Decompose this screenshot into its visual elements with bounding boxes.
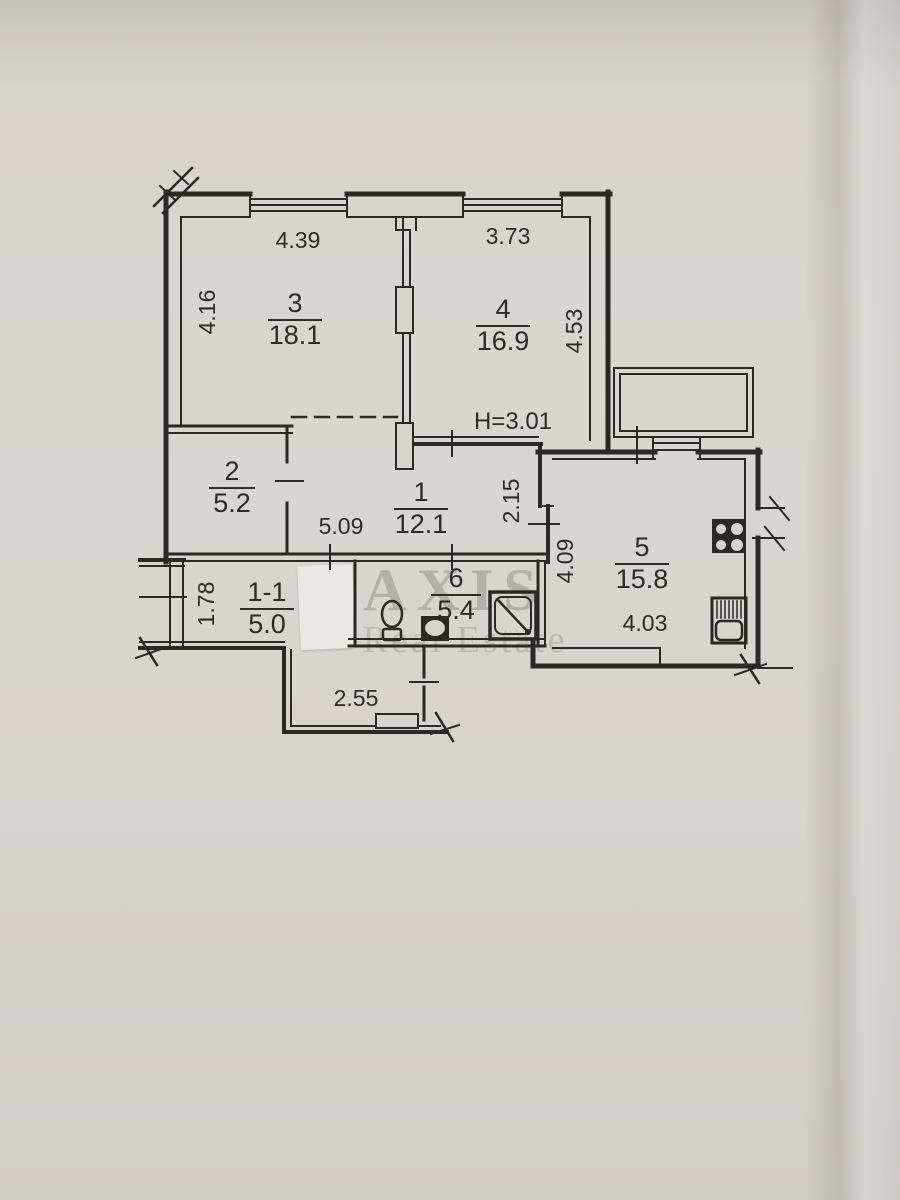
dim-corridor-depth: 1.78 bbox=[193, 582, 219, 627]
dim-room3-depth: 4.16 bbox=[194, 290, 220, 335]
window-room3 bbox=[250, 194, 347, 217]
room-number: 2 bbox=[224, 456, 239, 486]
room-number: 6 bbox=[448, 563, 463, 593]
room-number: 1 bbox=[413, 477, 428, 507]
room-3-label: 3 18.1 bbox=[269, 288, 322, 350]
room-area: 18.1 bbox=[269, 320, 322, 350]
dim-hall-depth: 2.15 bbox=[498, 479, 524, 524]
door-jambs bbox=[376, 287, 418, 728]
room-4-label: 4 16.9 bbox=[477, 294, 530, 356]
ceiling-height-label: H=3.01 bbox=[474, 408, 552, 435]
room-area: 5.0 bbox=[248, 609, 286, 639]
room-5-label: 5 15.8 bbox=[616, 532, 669, 594]
room-area: 16.9 bbox=[477, 326, 530, 356]
dim-room4-width: 3.73 bbox=[486, 223, 531, 249]
window-room4 bbox=[463, 194, 562, 217]
floor-plan-drawing: 3 18.1 4 16.9 2 5.2 1 12.1 1-1 5.0 6 5.4 bbox=[0, 0, 900, 1200]
balcony bbox=[614, 368, 753, 437]
room-6-label: 6 5.4 bbox=[432, 563, 480, 625]
floor-plan-photo: AXIS Real Estate bbox=[0, 0, 900, 1200]
room-area: 5.4 bbox=[437, 595, 475, 625]
toilet-icon bbox=[382, 601, 402, 640]
dim-hall-width: 5.09 bbox=[319, 513, 364, 539]
room-number: 5 bbox=[634, 532, 649, 562]
room-area: 5.2 bbox=[213, 488, 251, 518]
dim-entry-width: 2.55 bbox=[334, 685, 379, 711]
dim-kitchen-depth: 4.09 bbox=[552, 539, 578, 584]
dim-room3-width: 4.39 bbox=[276, 227, 321, 253]
window-kitchen bbox=[653, 437, 700, 459]
room-2-label: 2 5.2 bbox=[210, 456, 254, 518]
dim-kitchen-width: 4.03 bbox=[623, 610, 668, 636]
room-area: 12.1 bbox=[395, 509, 448, 539]
room-area: 15.8 bbox=[616, 564, 669, 594]
wall-break-marks bbox=[136, 168, 792, 741]
room-1-label: 1 12.1 bbox=[395, 477, 448, 539]
room-1-1-label: 1-1 5.0 bbox=[241, 577, 293, 639]
dim-room4-depth: 4.53 bbox=[561, 309, 587, 354]
room-number: 4 bbox=[495, 294, 510, 324]
room-number: 3 bbox=[287, 288, 302, 318]
kitchen-sink-icon bbox=[712, 598, 746, 643]
shower-icon bbox=[490, 592, 536, 639]
stove-icon bbox=[712, 519, 746, 553]
room-number: 1-1 bbox=[247, 577, 286, 607]
